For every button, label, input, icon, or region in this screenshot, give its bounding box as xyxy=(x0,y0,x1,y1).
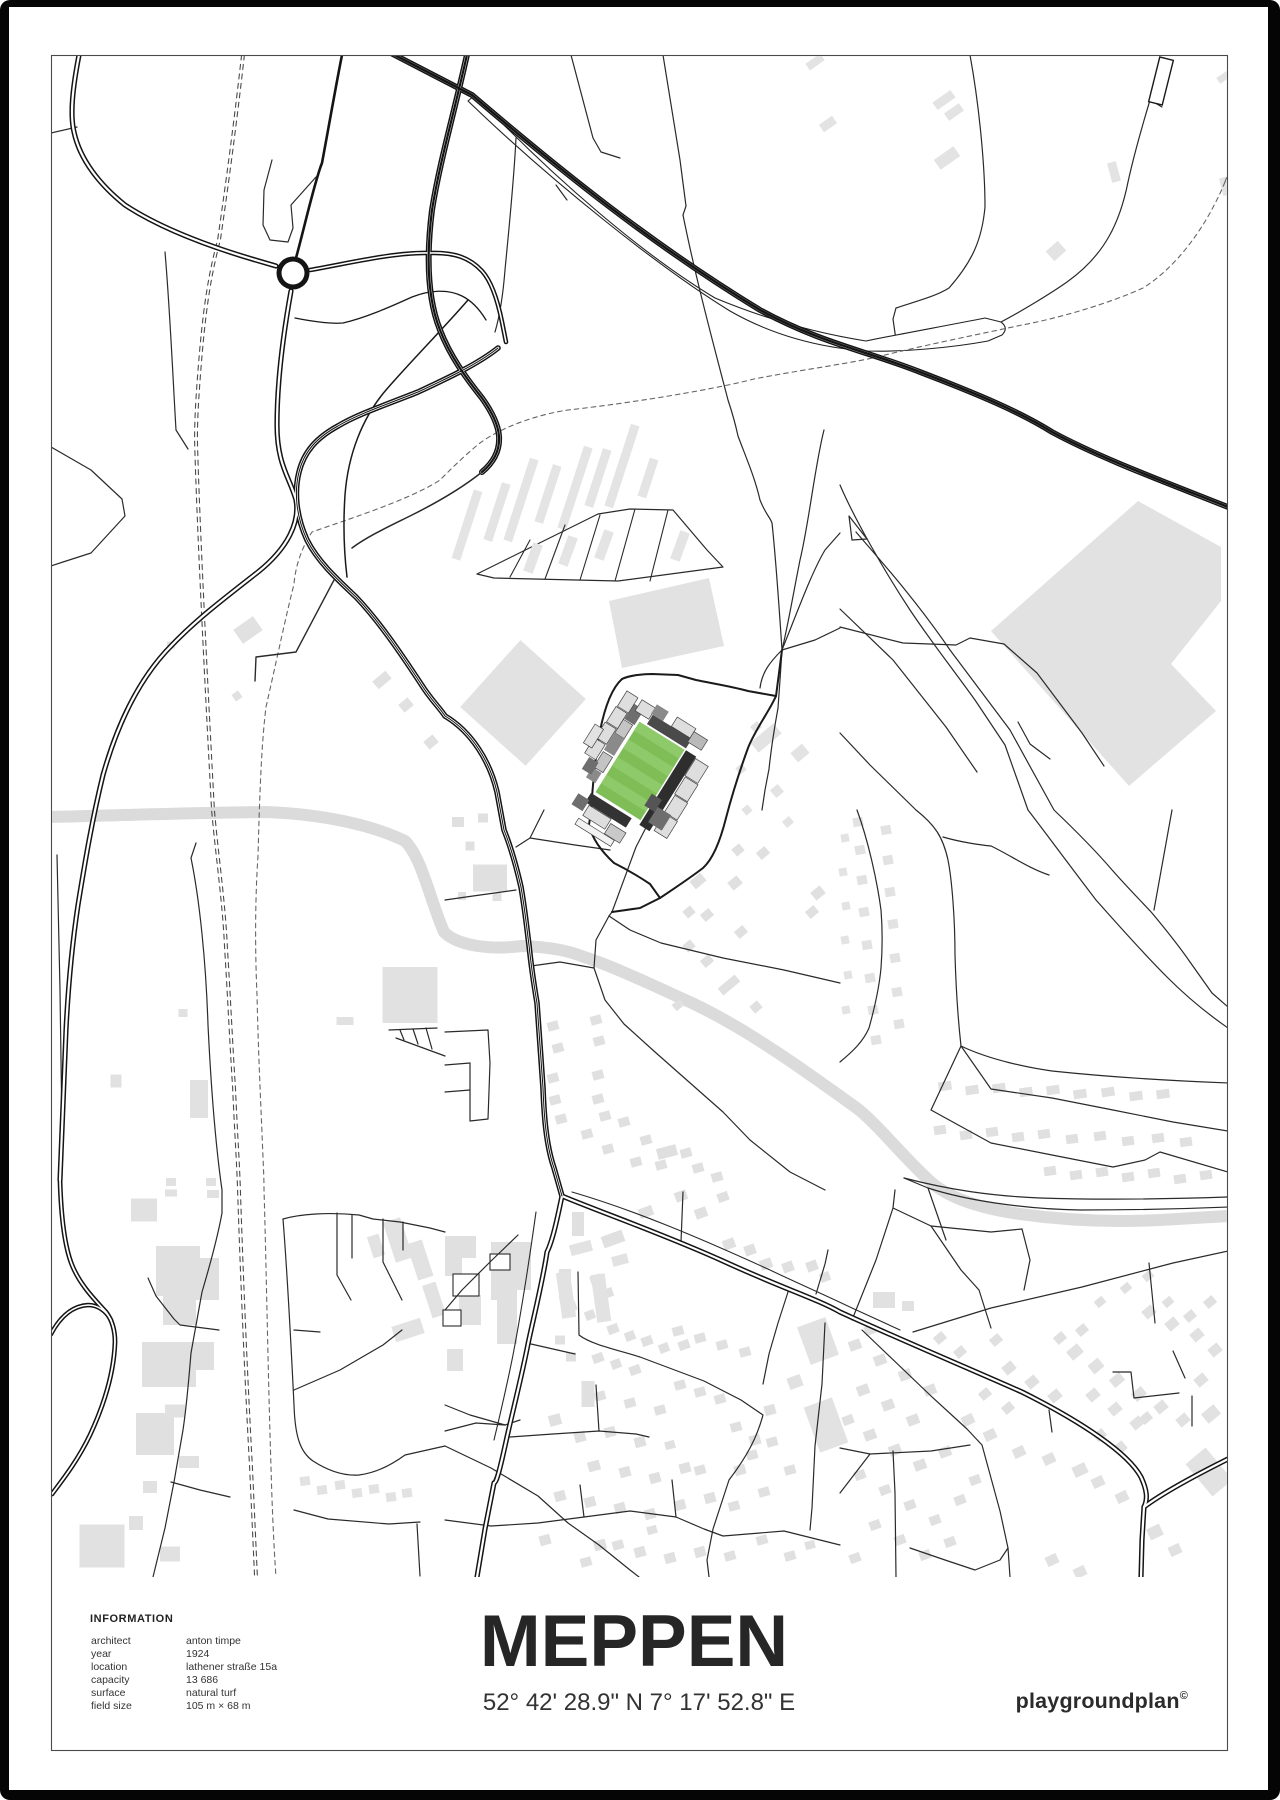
svg-text:field size: field size xyxy=(91,1700,132,1712)
svg-text:surface: surface xyxy=(91,1687,126,1699)
svg-text:1924: 1924 xyxy=(186,1648,210,1660)
svg-text:anton timpe: anton timpe xyxy=(186,1635,241,1647)
svg-text:location: location xyxy=(91,1661,127,1673)
svg-text:playgroundplan©: playgroundplan© xyxy=(1016,1689,1188,1713)
svg-text:MEPPEN: MEPPEN xyxy=(480,1601,788,1682)
svg-text:lathener straße 15a: lathener straße 15a xyxy=(186,1661,277,1673)
svg-text:INFORMATION: INFORMATION xyxy=(90,1613,173,1625)
svg-text:natural turf: natural turf xyxy=(186,1687,236,1699)
svg-text:105 m × 68 m: 105 m × 68 m xyxy=(186,1700,251,1712)
svg-text:year: year xyxy=(91,1648,112,1660)
svg-text:architect: architect xyxy=(91,1635,131,1647)
svg-text:52° 42' 28.9" N 7° 17' 52.8" E: 52° 42' 28.9" N 7° 17' 52.8" E xyxy=(483,1689,795,1716)
svg-text:13 686: 13 686 xyxy=(186,1674,218,1686)
svg-text:capacity: capacity xyxy=(91,1674,130,1686)
